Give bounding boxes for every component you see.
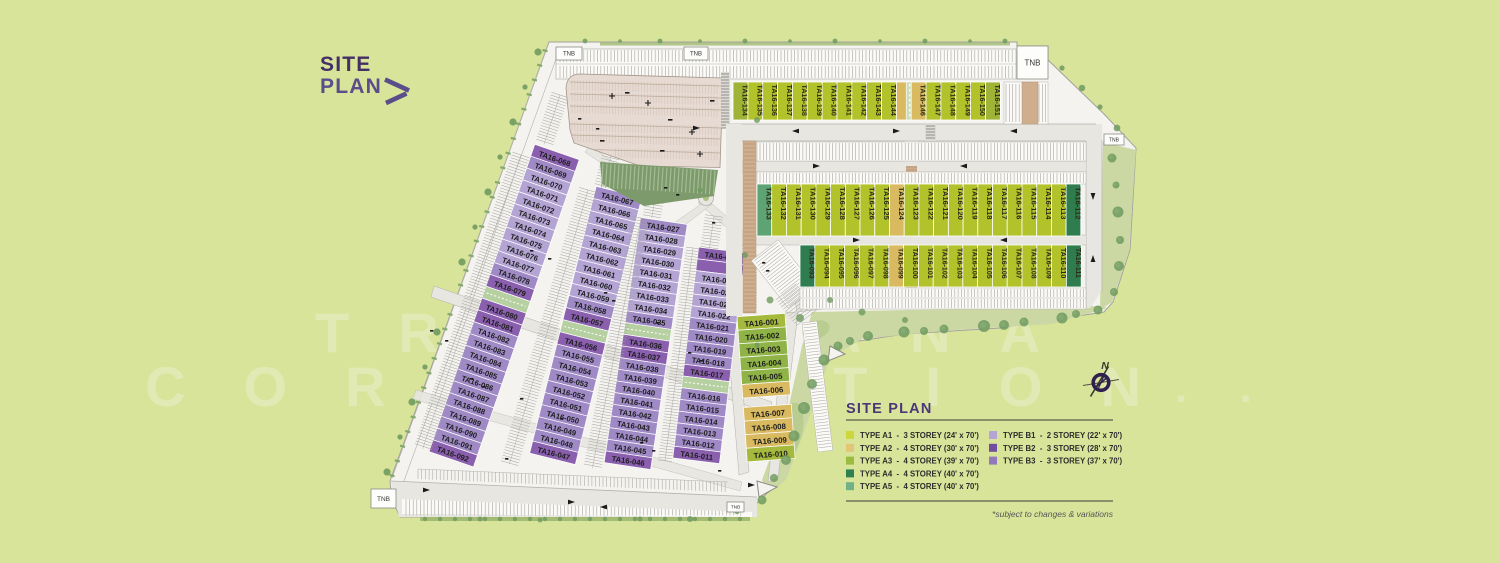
svg-text:TNB: TNB [731,505,741,511]
svg-text:TA16-106: TA16-106 [1000,248,1007,279]
svg-text:TYPE B3 - 3 STOREY (37' x 70: TYPE B3 - 3 STOREY (37' x 70') [1003,457,1123,466]
svg-text:TA16-101: TA16-101 [926,248,933,279]
svg-text:TA16-096: TA16-096 [852,248,859,279]
svg-text:SITE: SITE [320,53,371,76]
svg-text:TA16-104: TA16-104 [970,248,977,279]
svg-text:N: N [1101,360,1109,372]
svg-text:TA16-108: TA16-108 [1030,248,1037,279]
svg-text:SITE PLAN: SITE PLAN [846,401,933,417]
svg-text:TNB: TNB [690,52,702,58]
svg-text:TYPE A3 - 4 STOREY (39' x 70: TYPE A3 - 4 STOREY (39' x 70') [860,457,979,466]
svg-text:TYPE A1 - 3 STOREY (24' x 70: TYPE A1 - 3 STOREY (24' x 70') [860,431,979,440]
svg-text:. .: . . [1175,363,1272,412]
svg-text:TA16-098: TA16-098 [882,248,889,279]
svg-text:TYPE A2 - 4 STOREY (30' x 70: TYPE A2 - 4 STOREY (30' x 70') [860,444,979,453]
svg-text:TYPE B1 - 2 STOREY (22' x 70: TYPE B1 - 2 STOREY (22' x 70') [1003,431,1123,440]
svg-text:TA16-100: TA16-100 [911,248,918,279]
svg-text:TA16-151: TA16-151 [993,85,1002,116]
svg-text:TNB: TNB [1025,58,1041,67]
svg-text:TYPE B2 - 3 STOREY (28' x 70: TYPE B2 - 3 STOREY (28' x 70') [1003,444,1123,453]
svg-text:TA16-094: TA16-094 [822,248,829,279]
svg-text:TNB: TNB [1109,137,1120,143]
svg-text:TA16-097: TA16-097 [867,248,874,279]
svg-text:TA16-110: TA16-110 [1059,248,1066,278]
svg-text:TNB: TNB [563,52,575,58]
svg-text:TA16-099: TA16-099 [896,248,903,279]
svg-text:TA16-111: TA16-111 [1074,248,1081,278]
svg-text:TA16-102: TA16-102 [941,248,948,279]
svg-text:TNB: TNB [377,496,390,503]
svg-text:*subject to changes & variatio: *subject to changes & variations [992,509,1114,519]
svg-text:TA16-107: TA16-107 [1015,248,1022,279]
svg-text:TA16-095: TA16-095 [837,248,844,279]
svg-text:TA16-112: TA16-112 [1074,187,1083,219]
svg-text:TA16-105: TA16-105 [985,248,992,279]
svg-text:TA16-109: TA16-109 [1044,248,1051,279]
svg-text:TYPE A4 - 4 STOREY (40' x 70: TYPE A4 - 4 STOREY (40' x 70') [860,469,979,478]
svg-text:TA16-093: TA16-093 [808,248,815,279]
svg-text:TA16-103: TA16-103 [956,248,963,279]
svg-text:TYPE A5 - 4 STOREY (40' x 70: TYPE A5 - 4 STOREY (40' x 70') [860,482,979,491]
svg-text:PLAN: PLAN [320,75,382,98]
